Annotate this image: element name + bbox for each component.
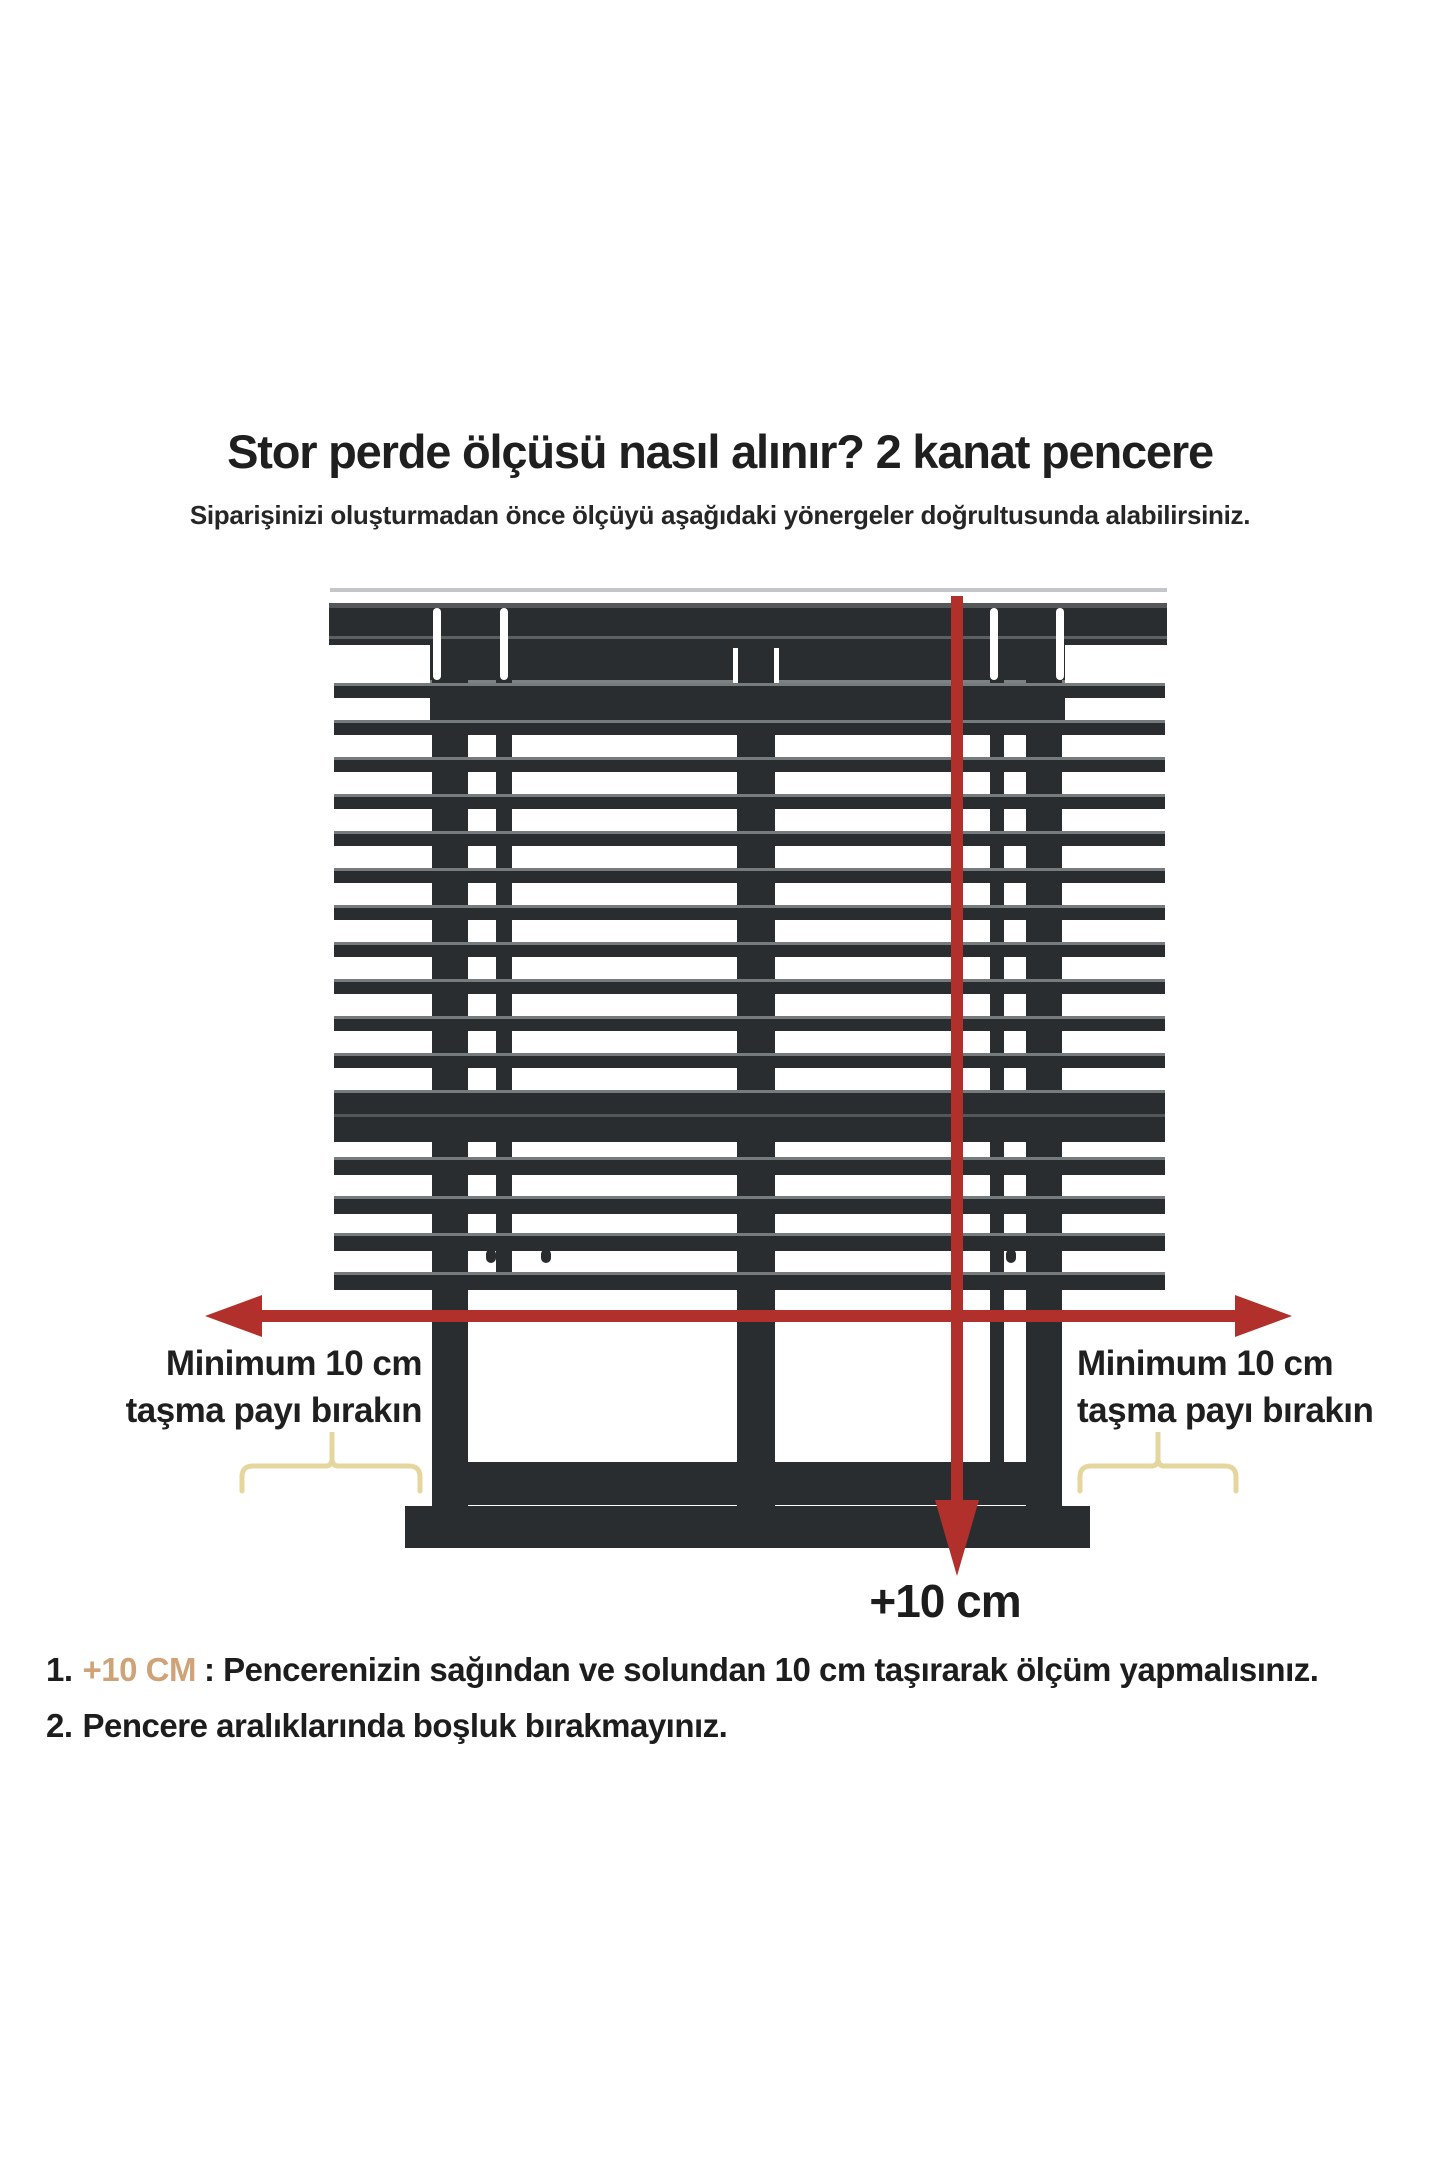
page-title: Stor perde ölçüsü nasıl alınır? 2 kanat …	[0, 424, 1440, 479]
instruction-1-text: : Pencerenizin sağından ve solundan 10 c…	[204, 1651, 1318, 1688]
left-overhang-label: Minimum 10 cm taşma payı bırakın	[126, 1340, 422, 1434]
right-overhang-label: Minimum 10 cm taşma payı bırakın	[1077, 1340, 1373, 1434]
instruction-2-number: 2.	[46, 1707, 73, 1744]
window-measurement-diagram	[100, 560, 1360, 1710]
window-sill	[405, 1506, 1090, 1548]
left-overhang-bracket	[242, 1432, 420, 1491]
vertical-measure-arrow	[935, 596, 979, 1576]
instruction-1-number: 1.	[46, 1651, 73, 1688]
right-jamb	[1026, 645, 1062, 1506]
instruction-2-text: Pencere aralıklarında boşluk bırakmayını…	[83, 1707, 728, 1744]
bottom-measure-label: +10 cm	[869, 1574, 1020, 1628]
right-sash-stile	[990, 645, 1004, 1505]
page-subtitle: Siparişinizi oluşturmadan önce ölçüyü aş…	[0, 500, 1440, 531]
right-overhang-bracket	[1080, 1432, 1236, 1491]
left-overhang-label-line2: taşma payı bırakın	[126, 1387, 422, 1434]
left-sash-stile	[496, 645, 512, 1290]
instruction-item-2: 2.Pencere aralıklarında boşluk bırakmayı…	[46, 1698, 1318, 1754]
right-overhang-label-line1: Minimum 10 cm	[1077, 1340, 1373, 1387]
left-sash-bottom-rail	[468, 1462, 737, 1505]
instructions-list: 1.+10 CM: Pencerenizin sağından ve solun…	[46, 1642, 1318, 1754]
left-jamb	[432, 645, 468, 1506]
instruction-1-highlight: +10 CM	[83, 1651, 196, 1688]
center-mullion	[737, 645, 775, 1506]
window-frame	[430, 645, 1065, 1506]
right-overhang-label-line2: taşma payı bırakın	[1077, 1387, 1373, 1434]
instruction-item-1: 1.+10 CM: Pencerenizin sağından ve solun…	[46, 1642, 1318, 1698]
left-overhang-label-line1: Minimum 10 cm	[126, 1340, 422, 1387]
right-sash-bottom-rail	[775, 1462, 1028, 1505]
blind-middle-band	[334, 1090, 1165, 1142]
blind-valance	[329, 603, 1167, 645]
wall-line	[330, 588, 1167, 592]
page: Stor perde ölçüsü nasıl alınır? 2 kanat …	[0, 0, 1440, 2160]
